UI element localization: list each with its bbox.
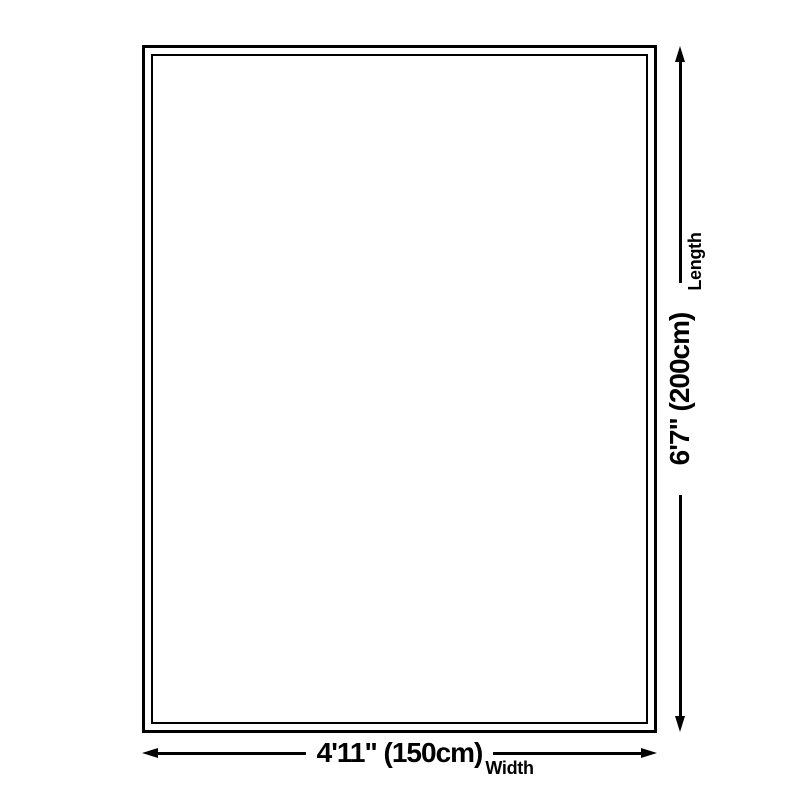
arrow-up-icon	[675, 46, 685, 62]
width-dimension-line-right	[493, 752, 641, 755]
size-diagram-canvas: 4'11" (150cm) Width 6'7" (200cm) Length	[0, 0, 800, 800]
width-value-label: 4'11" (150cm)	[317, 739, 483, 767]
width-dimension-indicator: 4'11" (150cm) Width	[142, 733, 657, 773]
length-dimension-indicator: 6'7" (200cm) Length	[660, 46, 700, 732]
width-arrow-left-segment	[142, 748, 306, 758]
length-value-label: 6'7" (200cm)	[666, 313, 694, 466]
width-arrow-right-segment	[493, 748, 657, 758]
product-outline-inner-border	[151, 54, 648, 724]
length-axis-label: Length	[686, 232, 704, 290]
length-dimension-line-top	[679, 62, 682, 283]
width-dimension-line-left	[158, 752, 306, 755]
arrow-left-icon	[142, 748, 158, 758]
length-arrow-bottom-segment	[675, 495, 685, 732]
product-outline	[142, 45, 657, 733]
width-axis-label: Width	[485, 759, 533, 777]
arrow-down-icon	[675, 716, 685, 732]
length-arrow-top-segment	[675, 46, 685, 283]
arrow-right-icon	[641, 748, 657, 758]
length-dimension-line-bottom	[679, 495, 682, 716]
